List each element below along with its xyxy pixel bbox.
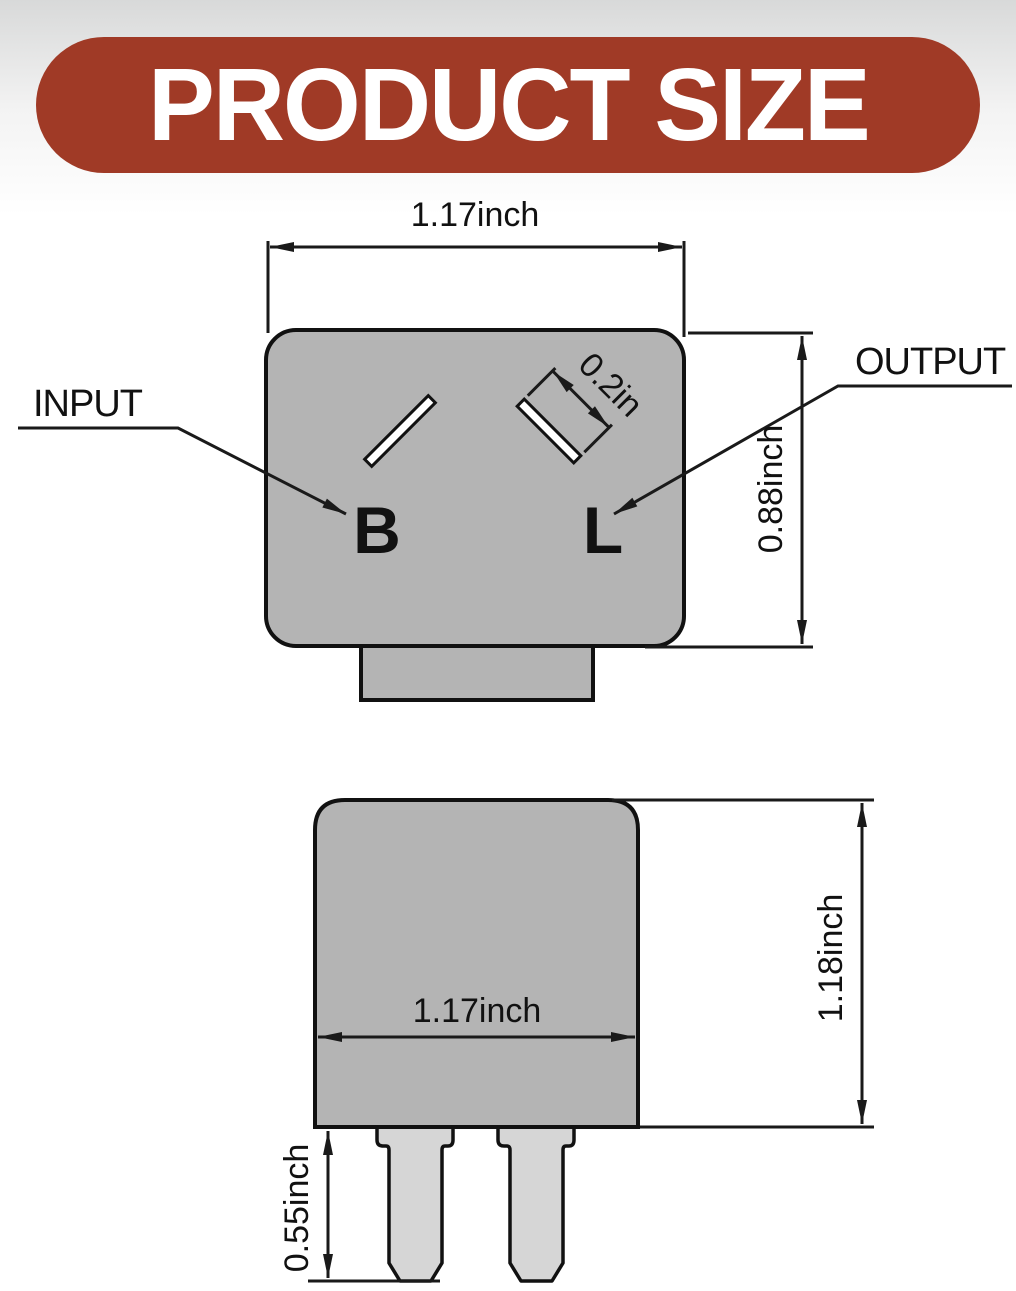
dimension-diagram: 1.17inch 0.2in B L INPUT OUTPUT [0,0,1016,1291]
terminal-l-label: L [583,493,623,567]
input-label: INPUT [33,383,143,425]
output-label: OUTPUT [855,341,1006,383]
side-view: 1.17inch 1.18inch 0.55inch [278,800,874,1281]
top-view: 1.17inch 0.2in B L INPUT OUTPUT [18,196,1012,700]
side-width-dimension-label: 1.17inch [413,992,542,1030]
prong-left [377,1120,453,1281]
top-view-tab [361,640,593,700]
prong-right [498,1120,574,1281]
side-height-dimension-label: 1.18inch [812,894,850,1023]
top-height-dimension-label: 0.88inch [752,425,790,554]
product-size-page: PRODUCT SIZE 1.17inch [0,0,1016,1291]
terminal-b-label: B [353,493,401,567]
side-view-device-body [315,800,638,1127]
pin-length-dimension-label: 0.55inch [278,1144,316,1273]
top-width-dimension-label: 1.17inch [411,196,540,234]
